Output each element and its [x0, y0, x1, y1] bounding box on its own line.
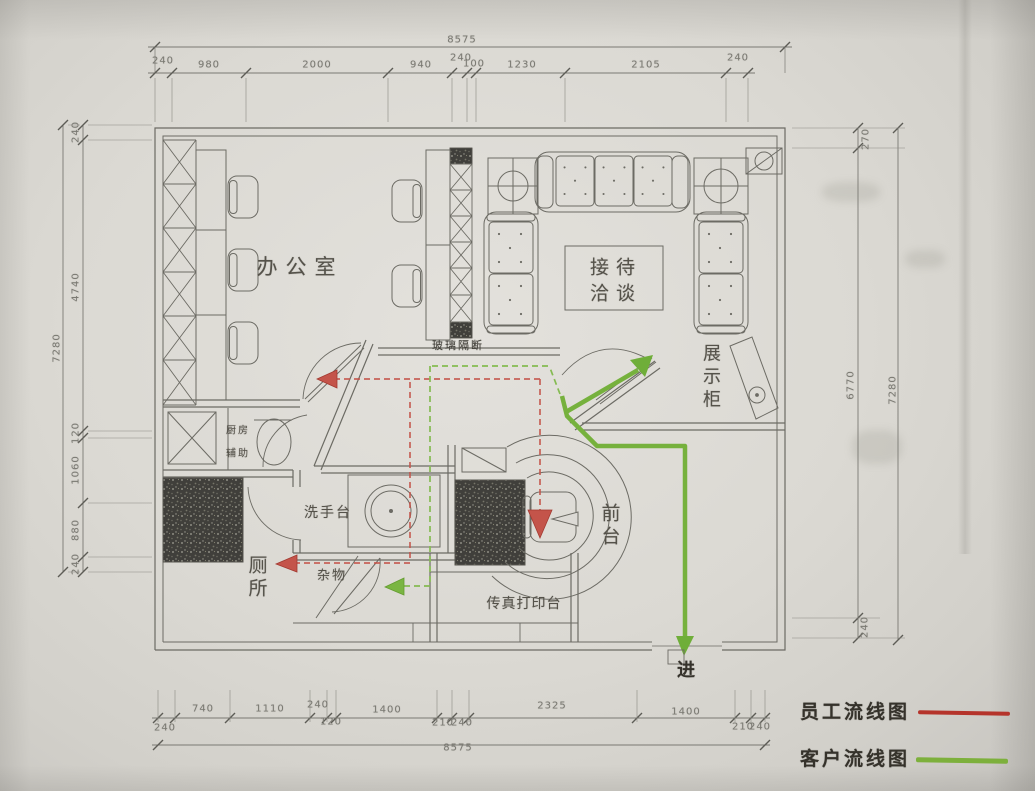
dimension-label: 1400 [671, 707, 700, 718]
floor-plan-drawing [0, 0, 1035, 791]
dimension-label: 240 [749, 722, 771, 733]
room-label-reception-1: 接待 [590, 253, 642, 280]
hatched-partition-center [450, 148, 472, 338]
dimension-label: 6770 [846, 370, 857, 399]
dimension-label: 2105 [631, 60, 660, 71]
dimension-label: 980 [198, 60, 220, 71]
room-label-fax-print: 传真打印台 [487, 593, 562, 613]
floor-plan-photo: 办公室 接待 洽谈 展示柜 玻璃隔断 厨房 辅助 洗手台 厕所 杂物 前台 传真… [0, 0, 1035, 791]
dimension-label: 240 [154, 723, 176, 734]
dimension-label: 880 [71, 519, 82, 541]
dimension-label: 270 [861, 128, 872, 150]
room-label-washbasin: 洗手台 [304, 502, 352, 522]
legend-customer-label: 客户流线图 [800, 744, 910, 771]
dimension-label: 1060 [71, 455, 82, 484]
dimension-label: 7280 [52, 333, 63, 362]
dimension-label: 8575 [447, 35, 476, 46]
dimension-label: 8575 [443, 743, 472, 754]
room-label-front-desk: 前台 [597, 503, 624, 549]
room-label-office: 办公室 [257, 251, 344, 281]
room-label-kitchen-1: 厨房 [226, 422, 250, 437]
hatched-wall-left [163, 140, 196, 405]
dimension-label: 240 [307, 700, 329, 711]
dimension-label: 2325 [537, 701, 566, 712]
dimension-label: 940 [410, 60, 432, 71]
legend-staff-label: 员工流线图 [800, 697, 910, 724]
room-label-toilet: 厕所 [244, 555, 271, 601]
dimension-label: 1400 [372, 705, 401, 716]
room-label-reception-2: 洽谈 [590, 279, 642, 306]
dimension-label: 120 [320, 717, 342, 728]
room-label-kitchen-2: 辅助 [226, 445, 250, 460]
dimension-label: 120 [71, 422, 82, 444]
dimension-label: 1110 [255, 704, 284, 715]
dimension-label: 240 [152, 56, 174, 67]
dimension-label: 4740 [71, 272, 82, 301]
room-label-display-cabinet: 展示柜 [697, 344, 723, 413]
label-partition: 玻璃隔断 [432, 337, 484, 353]
dimension-label: 7280 [888, 375, 899, 404]
dimension-label: 2000 [302, 60, 331, 71]
dimension-label: 100 [463, 59, 485, 70]
dimension-label: 240 [71, 121, 82, 143]
label-entrance: 进 [677, 656, 695, 682]
dimension-label: 240 [451, 718, 473, 729]
dimension-label: 1230 [507, 60, 536, 71]
dimension-label: 240 [71, 553, 82, 575]
dimension-label: 240 [727, 53, 749, 64]
dimension-label: 240 [860, 616, 871, 638]
dimension-label: 740 [192, 704, 214, 715]
room-label-sundry: 杂物 [317, 565, 347, 584]
